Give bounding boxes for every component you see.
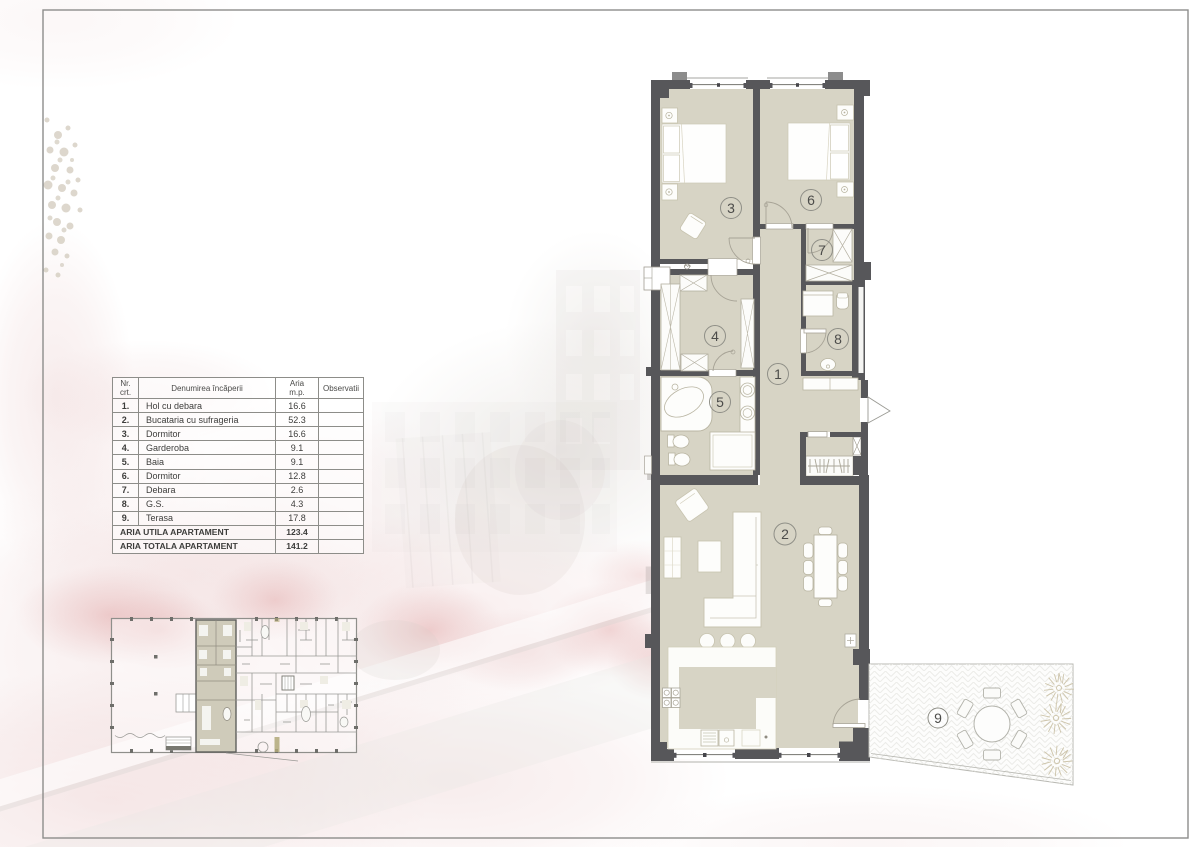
svg-text:9: 9	[934, 710, 942, 726]
svg-text:1: 1	[774, 366, 782, 382]
svg-text:6: 6	[807, 192, 815, 208]
svg-text:7: 7	[818, 242, 826, 258]
svg-text:8: 8	[834, 331, 842, 347]
svg-text:4: 4	[711, 328, 719, 344]
svg-text:3: 3	[727, 200, 735, 216]
svg-text:2: 2	[781, 526, 789, 542]
svg-text:5: 5	[716, 394, 724, 410]
